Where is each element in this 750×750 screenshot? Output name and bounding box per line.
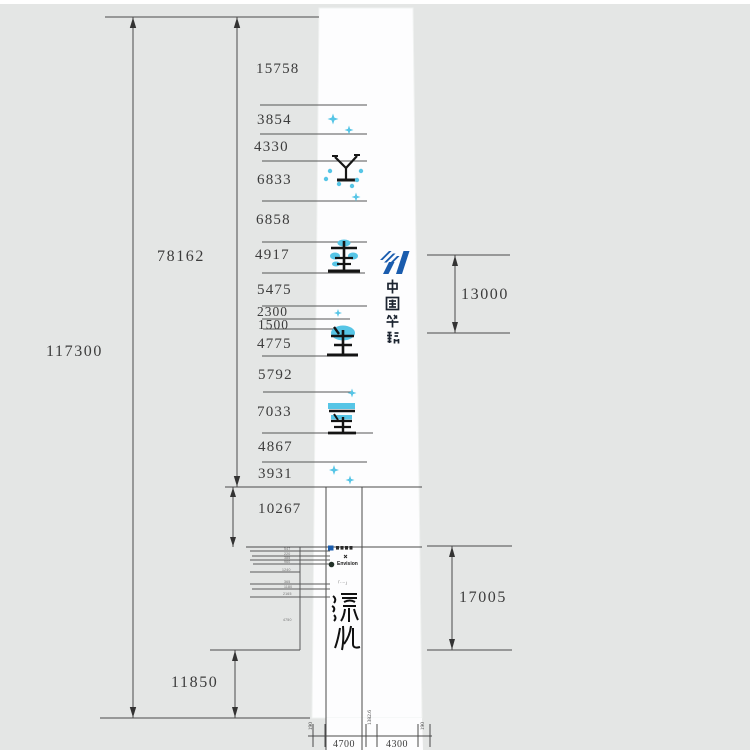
- total-height-label: 117300: [46, 344, 103, 360]
- upper-section-label: 78162: [157, 249, 205, 265]
- plaque-caption: 「····」: [336, 581, 349, 585]
- detail-callout-label: 960: [284, 561, 290, 565]
- elevation-drawing: 117300 78162 11850 13000 17005 15758 385…: [0, 0, 750, 750]
- detail-callout-label: 1180: [284, 586, 292, 590]
- base-width-label: 4700: [333, 740, 355, 750]
- detail-callout-label: 2165: [283, 593, 292, 597]
- base-width-label: 4300: [386, 740, 408, 750]
- segment-label: 5792: [258, 368, 293, 383]
- envision-label: Envision: [337, 562, 358, 567]
- base-width-label: 1382.6: [368, 710, 374, 725]
- segment-label: 4917: [255, 248, 290, 263]
- base-width-label: 190: [421, 722, 427, 730]
- dimension-lines: [100, 17, 512, 718]
- envision-logo-icon: [329, 562, 335, 568]
- detail-callout-label: 1240: [282, 569, 291, 573]
- base-width-label: 190: [309, 722, 315, 730]
- segment-label: 3931: [258, 467, 293, 482]
- segment-label: 15758: [256, 62, 300, 77]
- segment-label: 7033: [257, 405, 292, 420]
- segment-label: 3854: [257, 113, 292, 128]
- segment-label: 5475: [257, 283, 292, 298]
- segment-label: 10267: [258, 502, 302, 517]
- segment-label: 6833: [257, 173, 292, 188]
- segment-label: 6858: [256, 213, 291, 228]
- detail-callout-label: 4750: [283, 619, 292, 623]
- foundation-label: 11850: [171, 675, 218, 691]
- detail-callout-label: 547: [284, 548, 290, 552]
- detail-callout-label: 365: [284, 581, 290, 585]
- logo-band-label: 13000: [461, 287, 509, 303]
- artwork-band-label: 17005: [459, 590, 507, 606]
- tower-elevation-svg: [0, 0, 750, 750]
- segment-label: 4867: [258, 440, 293, 455]
- segment-label: 1500: [258, 318, 289, 332]
- segment-label: 4330: [254, 140, 289, 155]
- segment-label: 4775: [257, 337, 292, 352]
